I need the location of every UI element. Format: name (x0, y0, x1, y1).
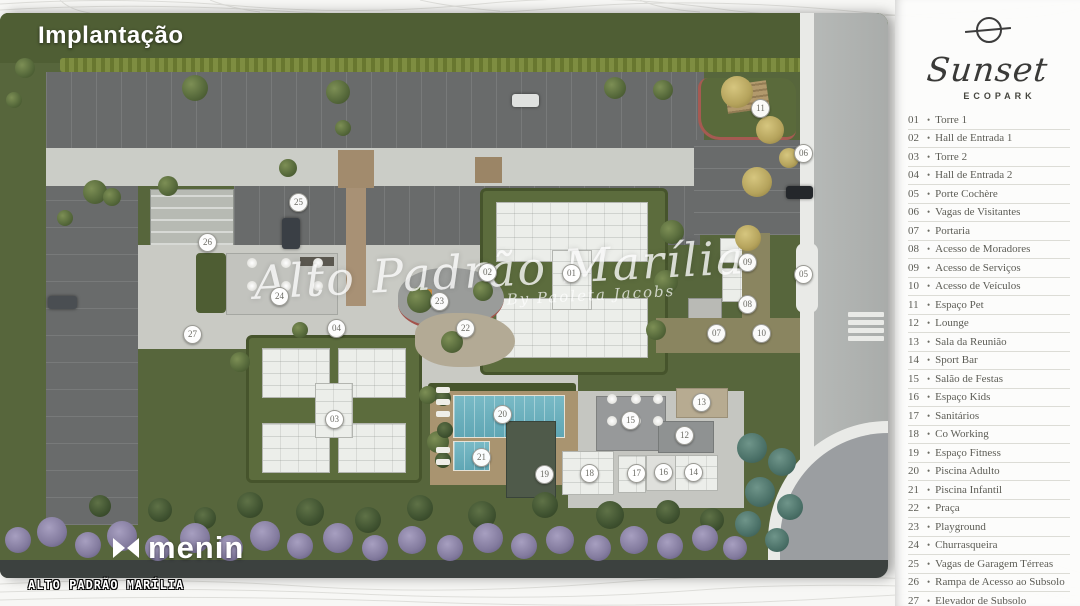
legend-item-07: 07•Portaria (908, 222, 1070, 241)
lavender-tree (287, 533, 313, 559)
tree (654, 270, 678, 294)
map-marker-04: 04 (327, 319, 346, 338)
developer-logo: menin (112, 530, 244, 566)
map-marker-22: 22 (456, 319, 475, 338)
parking-lot-left (46, 186, 138, 525)
car (786, 186, 813, 199)
car (512, 94, 539, 107)
lavender-tree (398, 526, 426, 554)
map-marker-06: 06 (794, 144, 813, 163)
lavender-tree (546, 526, 574, 554)
palm-tree (532, 492, 558, 518)
lavender-tree (692, 525, 718, 551)
legend-item-14: 14•Sport Bar (908, 352, 1070, 371)
map-marker-23: 23 (430, 292, 449, 311)
tree (182, 75, 208, 101)
car (48, 296, 77, 309)
teal-tree (737, 433, 767, 463)
tan-crossing (338, 150, 374, 188)
lavender-tree (723, 536, 747, 560)
map-marker-17: 17 (627, 464, 646, 483)
legend-item-06: 06•Vagas de Visitantes (908, 204, 1070, 223)
map-marker-11: 11 (751, 99, 770, 118)
map-marker-19: 19 (535, 465, 554, 484)
page-title: Implantação (38, 22, 184, 50)
map-marker-26: 26 (198, 233, 217, 252)
tree (326, 80, 350, 104)
perimeter-hedge (60, 58, 802, 72)
legend-item-24: 24•Churrasqueira (908, 537, 1070, 556)
table (607, 394, 617, 404)
pool-lounger (436, 411, 450, 417)
legend-list: 01•Torre 102•Hall de Entrada 103•Torre 2… (908, 111, 1070, 606)
teal-tree (777, 494, 803, 520)
pool-lounger (436, 447, 450, 453)
legend-item-25: 25•Vagas de Garagem Térreas (908, 555, 1070, 574)
yellow-tree (742, 167, 772, 197)
legend-item-22: 22•Praça (908, 500, 1070, 519)
teal-tree (765, 528, 789, 552)
brand-name: Sunset (893, 50, 1080, 89)
lavender-tree (37, 517, 67, 547)
fitness-area (506, 421, 556, 498)
map-marker-24: 24 (270, 287, 289, 306)
table (607, 416, 617, 426)
menin-logo-icon (112, 538, 140, 558)
map-marker-21: 21 (472, 448, 491, 467)
tree (279, 159, 297, 177)
legend-item-11: 11•Espaço Pet (908, 296, 1070, 315)
legend-item-13: 13•Sala da Reunião (908, 333, 1070, 352)
sunset-sun-icon (965, 14, 1011, 48)
tree (292, 322, 308, 338)
map-marker-12: 12 (675, 426, 694, 445)
tree (158, 176, 178, 196)
map-marker-15: 15 (621, 411, 640, 430)
legend-item-08: 08•Acesso de Moradores (908, 241, 1070, 260)
lavender-tree (362, 535, 388, 561)
lavender-tree (620, 526, 648, 554)
legend-item-15: 15•Salão de Festas (908, 370, 1070, 389)
palm-tree (89, 495, 111, 517)
tree (653, 80, 673, 100)
palm-tree (355, 507, 381, 533)
table (653, 394, 663, 404)
table (313, 281, 323, 291)
yellow-tree (735, 225, 761, 251)
table (247, 258, 257, 268)
bottom-caption: ALTO PADRÃO MARÍLIA (28, 578, 184, 592)
table (653, 416, 663, 426)
teal-tree (735, 511, 761, 537)
legend-item-18: 18•Co Working (908, 426, 1070, 445)
tree (57, 210, 73, 226)
palm-tree (437, 422, 453, 438)
pool-lounger (436, 399, 450, 405)
map-marker-09: 09 (738, 253, 757, 272)
map-marker-08: 08 (738, 295, 757, 314)
map-marker-18: 18 (580, 464, 599, 483)
tree (473, 281, 493, 301)
legend-item-01: 01•Torre 1 (908, 111, 1070, 130)
legend-item-19: 19•Espaço Fitness (908, 444, 1070, 463)
tree (15, 58, 35, 78)
teal-tree (745, 477, 775, 507)
crosswalk (848, 312, 884, 341)
yellow-tree (756, 116, 784, 144)
palm-tree (237, 492, 263, 518)
developer-logo-text: menin (148, 530, 244, 566)
lavender-tree (657, 533, 683, 559)
site-plan-page: Implantação Alto Padrão Marília By Paole… (0, 0, 1080, 606)
legend-item-09: 09•Acesso de Serviços (908, 259, 1070, 278)
lavender-tree (511, 533, 537, 559)
pool-lounger (436, 387, 450, 393)
legend-item-02: 02•Hall de Entrada 1 (908, 130, 1070, 149)
legend-panel: Sunset ECOPARK 01•Torre 102•Hall de Entr… (895, 0, 1080, 606)
map-marker-16: 16 (654, 463, 673, 482)
table (247, 281, 257, 291)
map-marker-27: 27 (183, 325, 202, 344)
tree (335, 120, 351, 136)
planter (475, 157, 502, 183)
tree (230, 352, 250, 372)
table (313, 258, 323, 268)
legend-item-03: 03•Torre 2 (908, 148, 1070, 167)
site-plan-map: Implantação Alto Padrão Marília By Paole… (0, 13, 888, 578)
map-marker-01: 01 (562, 264, 581, 283)
map-marker-14: 14 (684, 463, 703, 482)
table (281, 258, 291, 268)
lavender-tree (585, 535, 611, 561)
lavender-tree (473, 523, 503, 553)
palm-tree (656, 500, 680, 524)
palm-tree (596, 501, 624, 529)
teal-tree (768, 448, 796, 476)
legend-item-21: 21•Piscina Infantil (908, 481, 1070, 500)
legend-item-10: 10•Acesso de Veículos (908, 278, 1070, 297)
map-marker-10: 10 (752, 324, 771, 343)
legend-item-26: 26•Rampa de Acesso ao Subsolo (908, 574, 1070, 593)
yellow-tree (721, 76, 753, 108)
car (282, 218, 300, 249)
lavender-tree (323, 523, 353, 553)
legend-item-12: 12•Lounge (908, 315, 1070, 334)
map-marker-02: 02 (478, 263, 497, 282)
table (631, 394, 641, 404)
legend-item-05: 05•Porte Cochère (908, 185, 1070, 204)
lavender-tree (250, 521, 280, 551)
map-marker-07: 07 (707, 324, 726, 343)
map-marker-20: 20 (493, 405, 512, 424)
map-marker-03: 03 (325, 410, 344, 429)
lavender-tree (75, 532, 101, 558)
lavender-tree (5, 527, 31, 553)
map-marker-25: 25 (289, 193, 308, 212)
map-marker-13: 13 (692, 393, 711, 412)
entry-road (656, 318, 814, 353)
bbq-hedge (196, 253, 226, 313)
legend-item-16: 16•Espaço Kids (908, 389, 1070, 408)
legend-item-27: 27•Elevador de Subsolo (908, 592, 1070, 606)
tree (646, 320, 666, 340)
palm-tree (407, 495, 433, 521)
legend-item-23: 23•Playground (908, 518, 1070, 537)
brand-subname: ECOPARK (919, 91, 1080, 101)
palm-tree (296, 498, 324, 526)
map-marker-05: 05 (794, 265, 813, 284)
tree (103, 188, 121, 206)
legend-item-20: 20•Piscina Adulto (908, 463, 1070, 482)
tree (604, 77, 626, 99)
brand-logo: Sunset ECOPARK (895, 14, 1080, 101)
pool-lounger (436, 459, 450, 465)
tree (6, 92, 22, 108)
lavender-tree (437, 535, 463, 561)
tree (660, 220, 684, 244)
palm-tree (148, 498, 172, 522)
legend-item-04: 04•Hall de Entrada 2 (908, 167, 1070, 186)
tan-path (346, 188, 366, 306)
legend-item-17: 17•Sanitários (908, 407, 1070, 426)
